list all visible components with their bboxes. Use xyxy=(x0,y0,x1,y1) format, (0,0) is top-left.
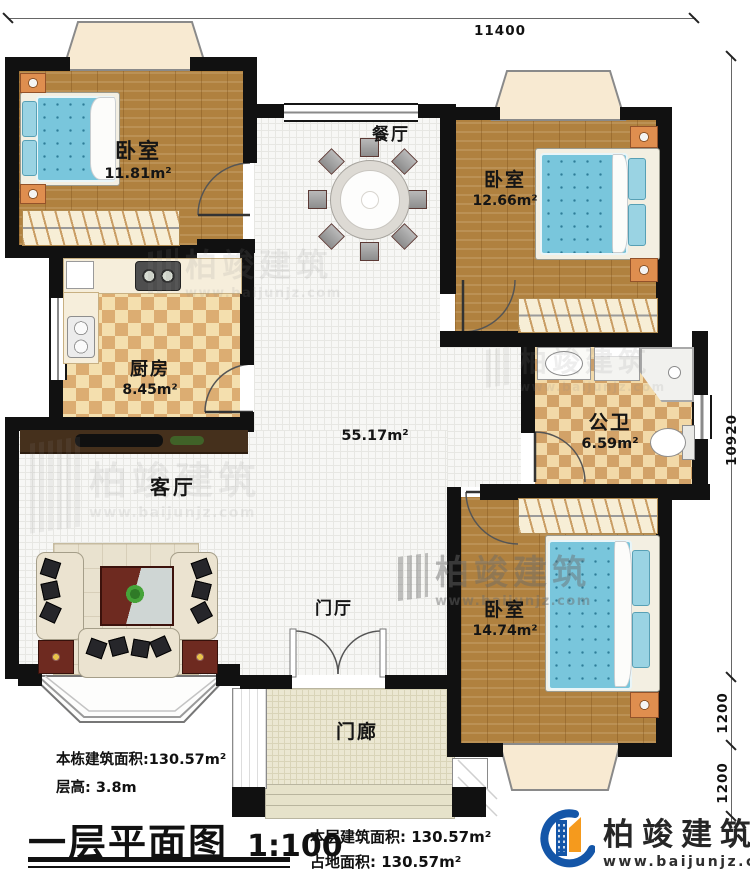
fridge xyxy=(66,261,94,289)
foyer-label: 门厅 xyxy=(315,600,353,619)
building-area-note: 本栋建筑面积:130.57m² xyxy=(56,748,226,769)
bathroom-sink xyxy=(545,351,583,376)
dining-window xyxy=(284,103,418,122)
brand-logo: 柏竣建筑 www.baijunjz.com xyxy=(535,808,750,870)
room-area: 11.81m² xyxy=(104,166,171,182)
top-dimension-label: 11400 xyxy=(468,23,532,39)
room-name: 卧室 xyxy=(455,600,555,621)
right-dimension-label-main: 10920 xyxy=(724,414,740,466)
room-area: 14.74m² xyxy=(472,623,537,639)
ground-area-note: 占地面积: 130.57m² xyxy=(310,851,461,872)
console-plant-decor xyxy=(170,436,204,445)
wall xyxy=(440,104,456,294)
bedroom2-bay-window xyxy=(492,71,625,120)
wall-corner-block xyxy=(216,664,240,686)
room-name: 卧室 xyxy=(455,170,555,191)
bed-sheet xyxy=(612,154,628,253)
wall xyxy=(618,743,672,757)
top-dimension-line xyxy=(8,18,696,19)
wall xyxy=(692,331,708,395)
wall xyxy=(254,104,284,118)
bathroom-window xyxy=(692,395,712,439)
dining-chair xyxy=(408,190,427,209)
bedroom3-label: 卧室 14.74m² xyxy=(455,600,555,640)
wall xyxy=(240,675,292,689)
porch-column-left xyxy=(232,688,267,789)
nightstand xyxy=(20,73,46,93)
floor-plan-canvas: 11400 10920 1200 1200 xyxy=(0,0,750,878)
dining-chair xyxy=(360,242,379,261)
wall xyxy=(447,743,503,757)
room-name: 厨房 xyxy=(100,360,200,380)
nightstand xyxy=(630,258,658,282)
wall xyxy=(5,57,19,258)
title-underline-thick xyxy=(28,857,290,862)
brand-url: www.baijunjz.com xyxy=(603,854,750,870)
coffee-table-plant xyxy=(123,582,147,606)
room-name: 门厅 xyxy=(315,600,353,619)
bedroom3-bay-window xyxy=(500,744,620,790)
wall xyxy=(5,417,19,679)
room-area: 8.45m² xyxy=(122,382,177,398)
living-bay-window xyxy=(32,676,228,722)
dining-table-center xyxy=(361,191,379,209)
nightstand xyxy=(630,126,658,148)
floor-area-note: 本层建筑面积: 130.57m² xyxy=(310,826,491,847)
wall xyxy=(440,331,672,347)
tv xyxy=(75,434,163,447)
bedroom2-label: 卧室 12.66m² xyxy=(455,170,555,210)
bedroom1-label: 卧室 11.81m² xyxy=(88,140,188,182)
nightstand xyxy=(630,692,659,718)
side-table xyxy=(38,640,74,674)
wardrobe xyxy=(22,210,180,246)
stove xyxy=(135,261,181,291)
wall xyxy=(5,417,254,431)
room-area: 12.66m² xyxy=(472,193,537,209)
wall xyxy=(49,380,63,420)
bedroom1-bay-window xyxy=(63,22,207,70)
side-table xyxy=(182,640,218,674)
bed-pillow xyxy=(22,101,37,137)
living-bay-window-glass xyxy=(45,676,219,711)
wall xyxy=(5,245,197,258)
wall xyxy=(455,107,500,120)
wall xyxy=(240,245,254,365)
kitchen-sink xyxy=(67,316,95,358)
room-name: 餐厅 xyxy=(372,126,410,145)
bed-pillow xyxy=(632,550,650,606)
right-dimension-label-seg2: 1200 xyxy=(715,757,731,809)
living-bay-window-glass xyxy=(38,676,224,717)
dining-label: 餐厅 xyxy=(372,126,410,145)
kitchen-label: 厨房 8.45m² xyxy=(100,360,200,399)
hall-to-bathroom-floor xyxy=(440,347,521,487)
sofa-pillow xyxy=(40,580,60,600)
room-name: 卧室 xyxy=(88,140,188,164)
room-area: 55.17m² xyxy=(341,428,408,444)
room-name: 公卫 xyxy=(560,412,660,434)
washing-machine xyxy=(594,347,640,381)
bed-sheet xyxy=(614,541,632,687)
bathroom-label: 公卫 6.59m² xyxy=(560,412,660,452)
open-area-label: 55.17m² xyxy=(330,428,420,444)
title-underline-thin xyxy=(28,866,290,868)
porch-label: 门廊 xyxy=(312,722,402,743)
bed-pillow xyxy=(632,612,650,668)
wardrobe xyxy=(518,298,658,333)
living-label: 客厅 xyxy=(150,476,196,498)
brand-logo-icon xyxy=(535,808,595,870)
room-name: 门廊 xyxy=(312,722,402,743)
floor-height-note: 层高: 3.8m xyxy=(56,776,137,797)
sofa-pillow xyxy=(131,639,151,659)
wall xyxy=(521,347,535,433)
bed-pillow xyxy=(628,204,646,246)
nightstand xyxy=(20,184,46,204)
dining-chair xyxy=(308,190,327,209)
porch-column-right xyxy=(452,758,488,789)
brand-name: 柏竣建筑 xyxy=(603,809,750,854)
wardrobe xyxy=(518,498,658,534)
right-dimension-label-seg1: 1200 xyxy=(715,687,731,739)
room-name: 客厅 xyxy=(150,476,196,498)
shower-head xyxy=(668,366,681,379)
wall xyxy=(385,675,447,689)
room-area: 6.59m² xyxy=(581,436,638,452)
porch-column-cap-right xyxy=(452,787,486,817)
bed-pillow xyxy=(22,140,37,176)
wall xyxy=(49,258,63,298)
bed-pillow xyxy=(628,158,646,200)
